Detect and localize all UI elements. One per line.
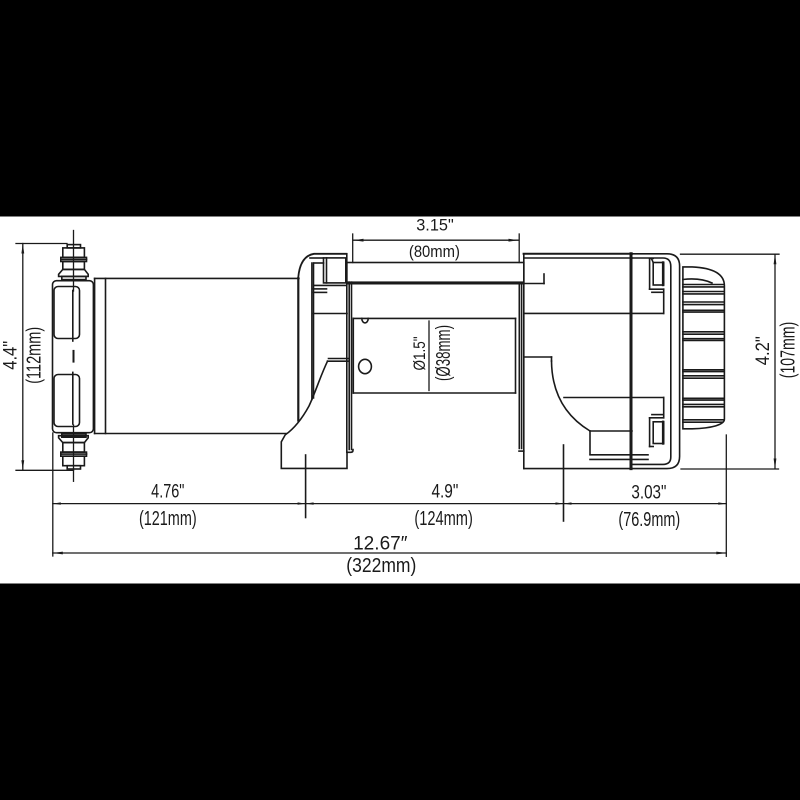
- svg-text:(80mm): (80mm): [409, 243, 460, 261]
- svg-text:4.2": 4.2": [753, 336, 774, 365]
- svg-text:(322mm): (322mm): [346, 555, 416, 577]
- svg-text:(107mm): (107mm): [778, 322, 800, 379]
- svg-text:12.67″: 12.67″: [353, 533, 407, 555]
- svg-text:(121mm): (121mm): [139, 508, 197, 530]
- svg-text:4.76": 4.76": [151, 482, 184, 503]
- svg-text:3.03": 3.03": [631, 482, 666, 503]
- svg-text:Ø1.5": Ø1.5": [410, 337, 429, 371]
- svg-text:(112mm): (112mm): [24, 327, 46, 384]
- svg-text:4.4": 4.4": [0, 341, 21, 370]
- svg-text:3.15": 3.15": [416, 217, 454, 235]
- svg-text:4.9": 4.9": [431, 482, 458, 503]
- svg-text:(76.9mm): (76.9mm): [618, 509, 680, 531]
- svg-text:(124mm): (124mm): [414, 508, 473, 530]
- svg-text:(Ø38mm): (Ø38mm): [433, 325, 455, 381]
